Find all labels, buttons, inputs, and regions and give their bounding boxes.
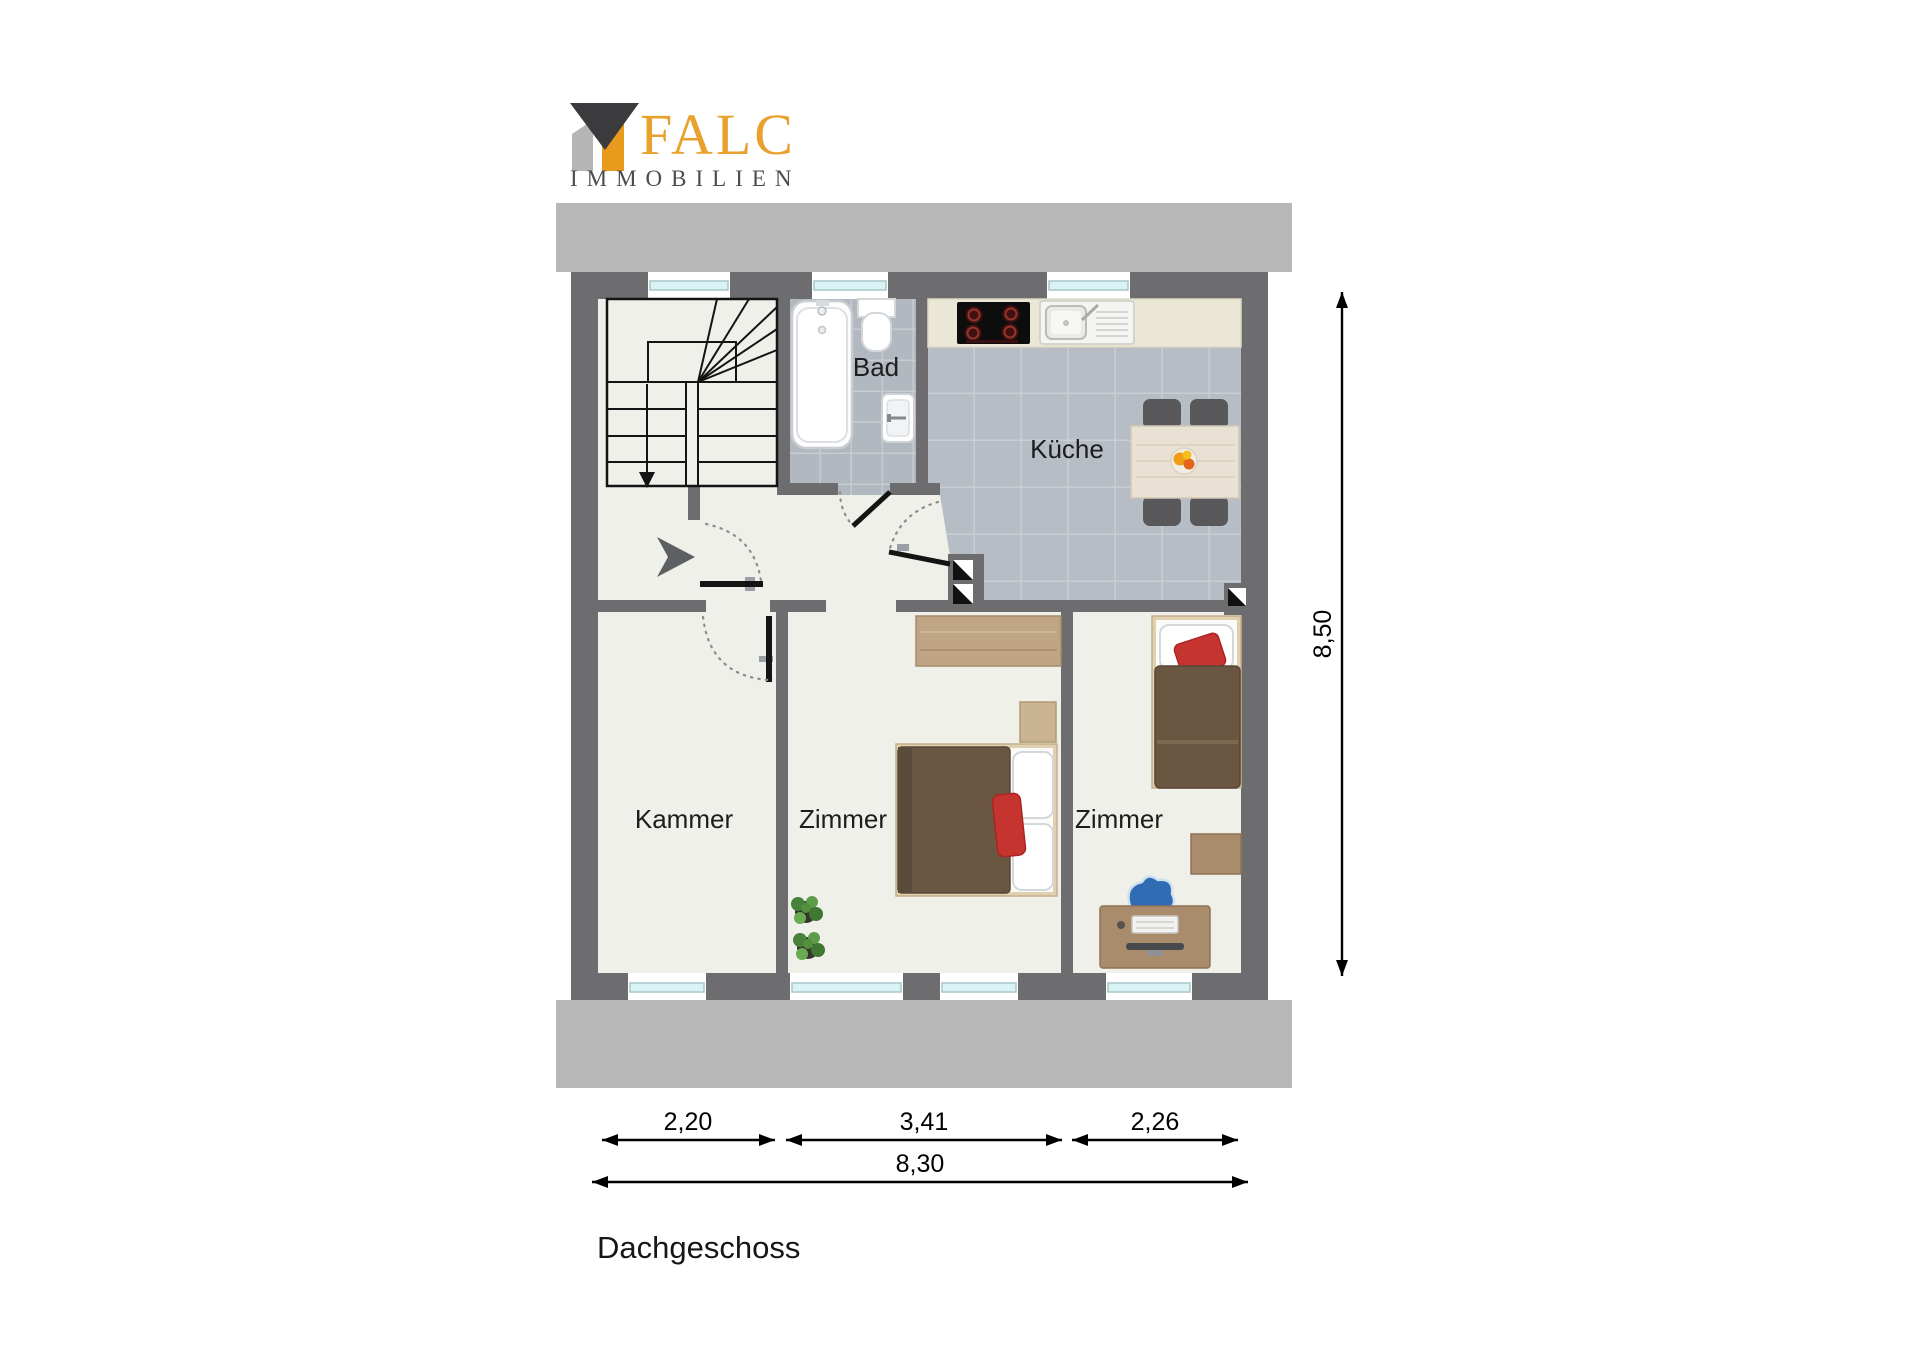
monitor	[1126, 943, 1184, 950]
bath-bottom-wall-left	[777, 483, 838, 495]
chair	[1143, 496, 1181, 526]
mouse	[1117, 921, 1125, 929]
label-kammer: Kammer	[635, 804, 734, 834]
stair-newel-stub	[688, 486, 700, 520]
window	[628, 973, 706, 1000]
window	[1106, 973, 1192, 1000]
chimney-shaft-right	[1224, 583, 1250, 615]
bathroom-sink	[882, 394, 914, 442]
dim-label-1: 2,20	[664, 1108, 713, 1136]
dresser	[1191, 834, 1241, 874]
falc-logo-icon	[570, 103, 639, 171]
window	[648, 272, 730, 299]
dim-label-3: 2,26	[1131, 1108, 1180, 1136]
hall-wall-stub	[770, 600, 826, 612]
dim-height: 8,50	[1309, 292, 1348, 976]
floorplan-canvas: FALC IMMOBILIEN	[0, 0, 1920, 1357]
wardrobe	[916, 616, 1061, 666]
window	[790, 973, 903, 1000]
fruit-bowl	[1171, 448, 1197, 474]
zimmer-zimmer-wall	[1061, 612, 1073, 973]
arrowhead	[1232, 1176, 1248, 1188]
window	[1047, 272, 1130, 299]
dim-segment-3: 2,26	[1072, 1108, 1238, 1146]
bath-left-wall	[777, 299, 790, 495]
blanket	[898, 747, 1010, 893]
label-zimmer-mitte: Zimmer	[799, 804, 887, 834]
toilet	[858, 299, 895, 351]
chair	[1190, 399, 1228, 429]
dim-total-width: 8,30	[592, 1150, 1248, 1188]
label-zimmer-rechts: Zimmer	[1075, 804, 1163, 834]
falc-logo: FALC IMMOBILIEN	[570, 102, 801, 191]
kitchen-sink	[1040, 301, 1134, 344]
bath-bottom-wall-right	[890, 483, 940, 495]
keyboard	[1132, 916, 1178, 933]
nightstand	[1020, 702, 1056, 742]
arrowhead	[592, 1176, 608, 1188]
single-bed	[1152, 616, 1241, 788]
dim-segment-2: 3,41	[786, 1108, 1062, 1146]
cooktop	[957, 302, 1030, 344]
staircase	[607, 299, 777, 488]
floorplan-page: FALC IMMOBILIEN	[0, 0, 1920, 1357]
dim-label-2: 3,41	[900, 1108, 949, 1136]
window	[812, 272, 888, 299]
logo-brand-text: FALC	[640, 102, 796, 167]
floor-title: Dachgeschoss	[597, 1230, 800, 1265]
logo-subtitle-text: IMMOBILIEN	[570, 166, 801, 191]
chair	[1190, 496, 1228, 526]
dim-segment-1: 2,20	[602, 1108, 775, 1146]
arrowhead	[1222, 1134, 1238, 1146]
red-pillow	[992, 793, 1026, 858]
hall-wall-left-segment	[598, 600, 706, 612]
chimney-shaft	[948, 554, 984, 612]
monitor-stand	[1147, 950, 1163, 956]
chair	[1143, 399, 1181, 429]
arrowhead	[1072, 1134, 1088, 1146]
window	[940, 973, 1018, 1000]
arrowhead	[1046, 1134, 1062, 1146]
roof-strip-bottom	[556, 1000, 1292, 1088]
arrowhead	[1336, 292, 1348, 308]
arrowhead	[1336, 960, 1348, 976]
bathtub	[792, 300, 852, 448]
arrowhead	[759, 1134, 775, 1146]
kammer-zimmer-wall	[776, 612, 788, 973]
floor-plan: Bad Küche Kammer Zimmer Zimmer	[556, 203, 1292, 1088]
label-bad: Bad	[853, 352, 899, 382]
blanket	[1155, 666, 1240, 788]
bath-right-wall	[916, 299, 928, 495]
arrowhead	[602, 1134, 618, 1146]
roof-strip-top	[556, 203, 1292, 272]
label-kueche: Küche	[1030, 434, 1104, 464]
double-bed	[896, 744, 1057, 896]
arrowhead	[786, 1134, 802, 1146]
dim-label-height: 8,50	[1309, 610, 1337, 659]
dim-label-total: 8,30	[896, 1150, 945, 1178]
rooms-top-wall	[896, 600, 1241, 612]
